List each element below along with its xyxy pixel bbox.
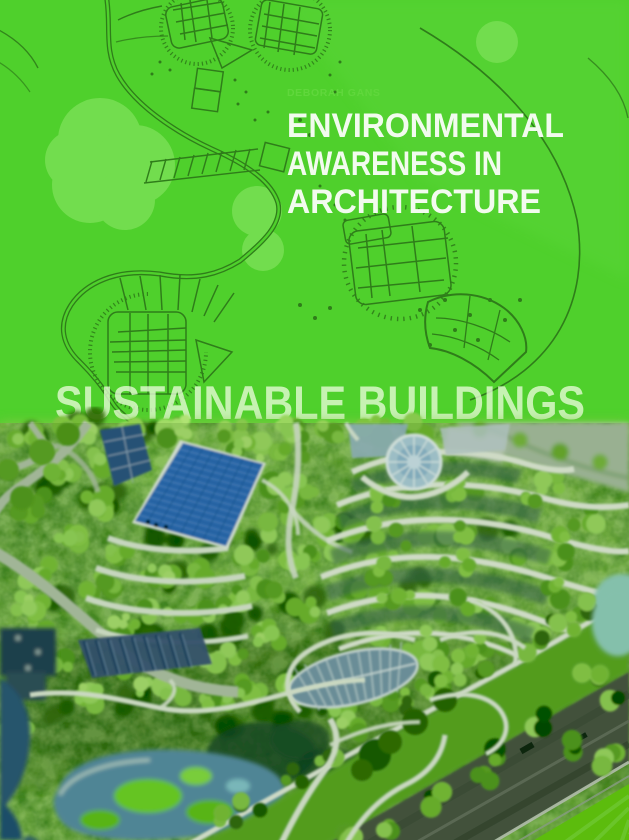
- svg-text:ARCHITECTURE: ARCHITECTURE: [287, 183, 541, 221]
- svg-text:DEBORAH GANS: DEBORAH GANS: [287, 87, 381, 99]
- svg-text:AWARENESS IN: AWARENESS IN: [287, 145, 502, 183]
- svg-text:ENVIRONMENTAL: ENVIRONMENTAL: [287, 107, 564, 145]
